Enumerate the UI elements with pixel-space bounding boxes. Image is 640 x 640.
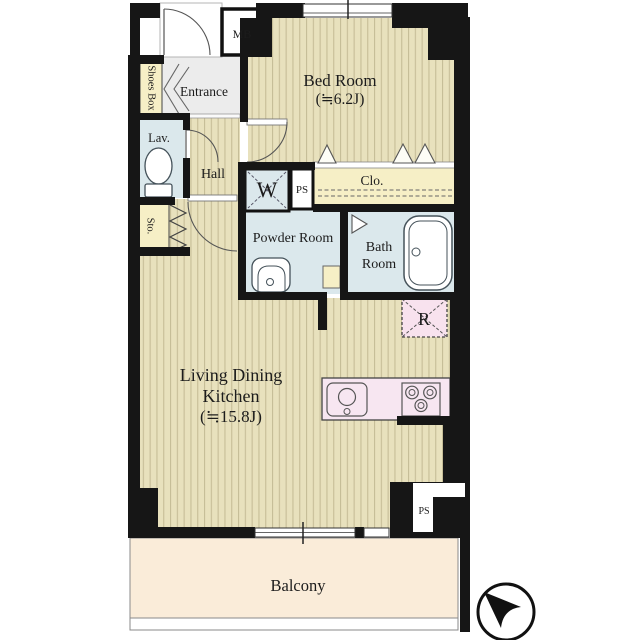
meter-box-label: MB	[233, 27, 252, 41]
entrance-label: Entrance	[180, 84, 228, 99]
storage-label: Sto.	[145, 218, 156, 235]
washing-machine-label: W	[257, 177, 278, 202]
wall	[355, 527, 364, 538]
wall	[183, 158, 190, 198]
bedroom-door-leaf	[247, 119, 287, 125]
wall	[256, 3, 305, 18]
wall	[428, 28, 468, 60]
wall	[240, 57, 248, 122]
hall-door-leaf	[188, 195, 237, 201]
wall	[460, 538, 470, 632]
wall	[128, 55, 140, 538]
wall	[340, 211, 348, 296]
wall	[318, 298, 327, 330]
wall	[313, 204, 458, 212]
wall	[238, 168, 246, 300]
powder-room-label: Powder Room	[253, 231, 334, 246]
shoes-box-label: Shoes Box	[146, 65, 157, 111]
wall	[450, 298, 470, 424]
toilet-tank-icon	[145, 184, 172, 197]
closet-label: Clo.	[361, 173, 384, 188]
wall	[183, 120, 190, 130]
wall	[128, 247, 190, 256]
balcony-railing	[130, 618, 458, 630]
refrigerator-label: R	[418, 309, 430, 329]
balcony-label: Balcony	[271, 576, 327, 595]
wall	[454, 160, 470, 298]
hall-label: Hall	[201, 167, 225, 182]
lavatory-label: Lav.	[148, 131, 170, 145]
wall	[397, 416, 453, 425]
closet-floor	[313, 166, 456, 207]
bath-room-label-2: Room	[362, 257, 396, 272]
counter-box	[323, 266, 340, 288]
pipe-space-lower-label: PS	[418, 506, 429, 517]
bedroom-size: (≒6.2J)	[316, 91, 365, 108]
toilet-icon	[145, 148, 172, 184]
wall	[340, 292, 458, 300]
ldk-label-1: Living Dining	[180, 365, 283, 385]
wall	[128, 113, 190, 120]
wall	[392, 3, 468, 28]
wall	[128, 197, 175, 205]
wall	[238, 292, 327, 300]
floor-plan: Bed Room (≒6.2J) Living Dining Kitchen (…	[0, 0, 640, 640]
ldk-size: (≒15.8J)	[200, 407, 262, 426]
ldk-label-2: Kitchen	[203, 386, 260, 406]
floor-plan-page: Bed Room (≒6.2J) Living Dining Kitchen (…	[0, 0, 640, 640]
pipe-space-upper-label: PS	[296, 184, 308, 196]
bathtub-icon	[404, 216, 452, 290]
entrance-door-alcove	[160, 3, 222, 57]
wall	[443, 424, 470, 482]
compass-icon	[478, 584, 534, 640]
bedroom-label: Bed Room	[303, 71, 376, 90]
wall	[238, 162, 315, 170]
balcony-window-right	[364, 528, 389, 537]
bath-room-label-1: Bath	[366, 240, 392, 255]
kitchen-counter	[322, 378, 450, 420]
wall	[130, 3, 160, 18]
wall	[138, 527, 255, 538]
hall-floor	[190, 115, 240, 203]
